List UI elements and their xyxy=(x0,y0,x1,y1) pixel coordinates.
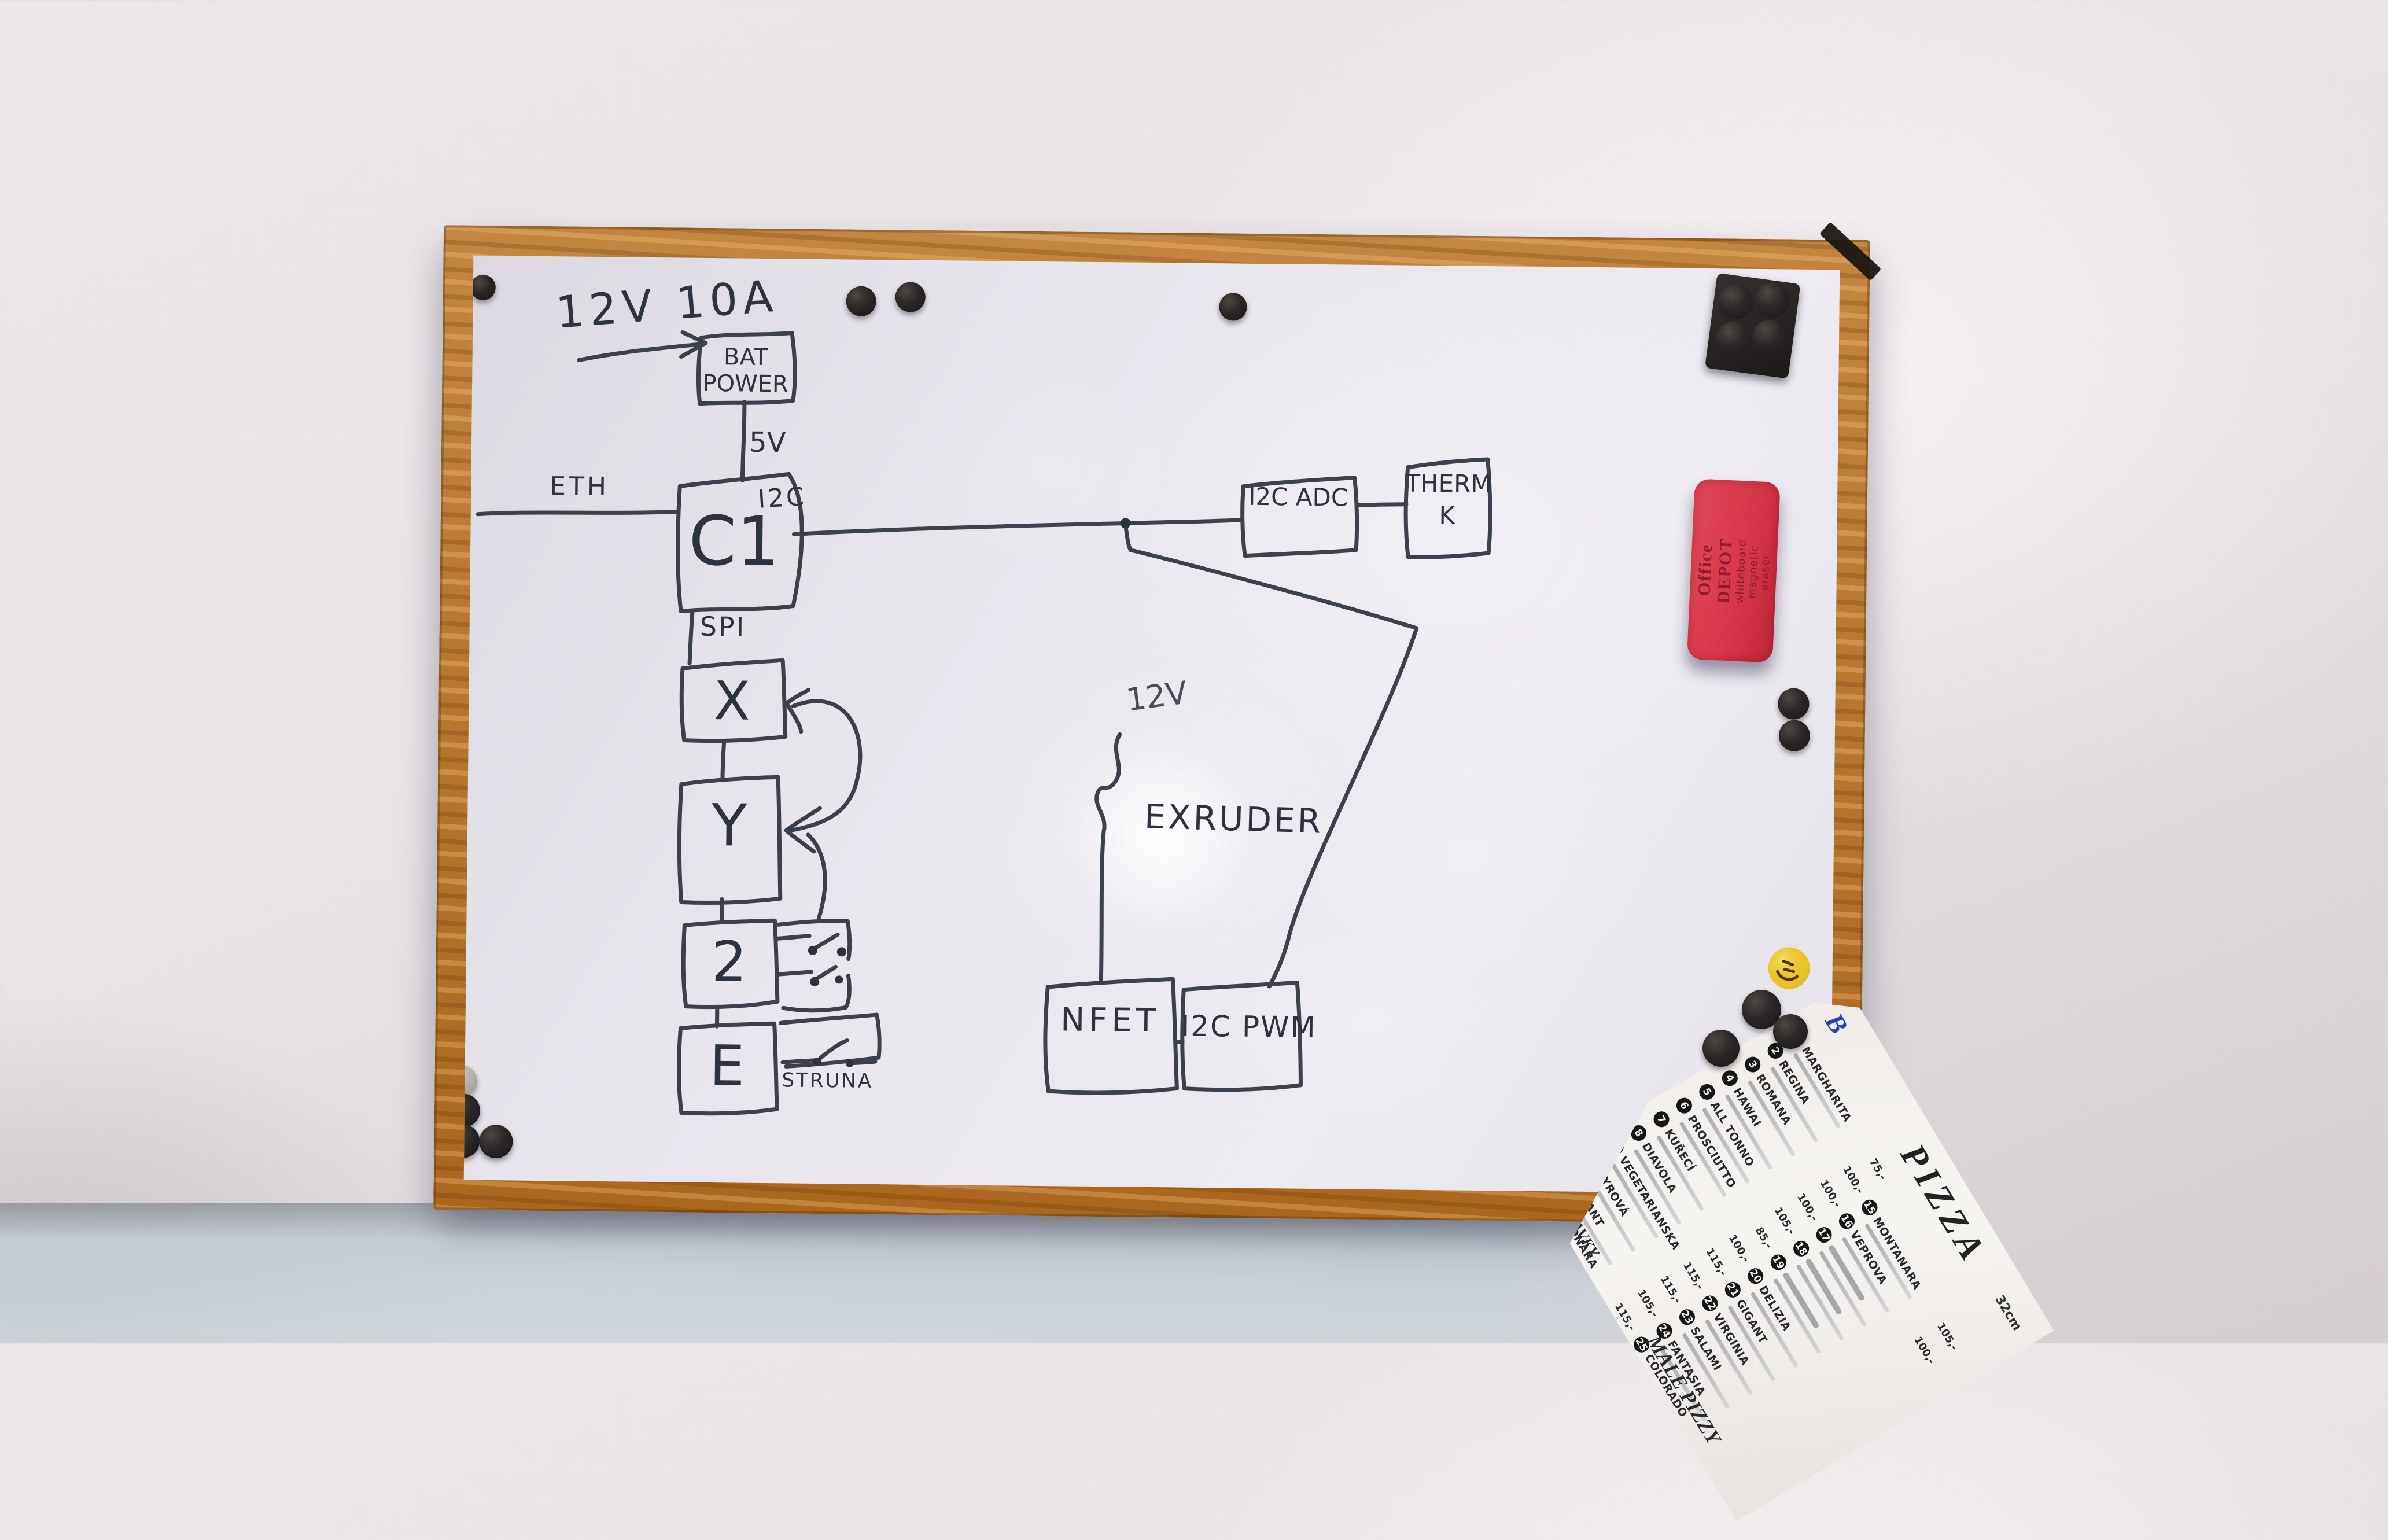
magnet xyxy=(1778,688,1810,720)
menu-size-note: 32cm xyxy=(1992,1293,2024,1333)
whiteboard-eraser: Office DEPOT whiteboard magnetic eraser xyxy=(1687,478,1781,662)
e-axis-box-label: E xyxy=(677,1033,776,1099)
therm-box-label: THERM K xyxy=(1405,468,1490,532)
magnet xyxy=(1219,293,1247,321)
menu-item-number: 18 xyxy=(1790,1238,1812,1259)
menu-item-number: 23 xyxy=(1676,1306,1698,1328)
magnet-pin xyxy=(1702,1030,1740,1067)
x-axis-box-label: X xyxy=(680,669,784,732)
i2c-pwm-box-label: I2C PWM xyxy=(1181,1010,1300,1044)
y-axis-box-label: Y xyxy=(679,791,780,860)
bat-power-box-label: BAT POWER xyxy=(698,344,794,398)
menu-item-number: 7 xyxy=(1650,1108,1672,1130)
magnet-tray xyxy=(1705,273,1801,379)
menu-item-price: 105,- xyxy=(1934,1321,1960,1353)
extruder-label: EXRUDER xyxy=(1144,797,1324,841)
magnet xyxy=(1750,318,1789,356)
5v-label: 5V xyxy=(749,426,786,459)
whiteboard-surface: 12V 10A ETH 5V I2C SPI 12V EXRUDER STRUN… xyxy=(464,256,1840,1195)
menu-item-number: 16 xyxy=(1836,1210,1858,1232)
menu-item-number: 5 xyxy=(1696,1081,1718,1103)
menu-item-number: 4 xyxy=(1719,1067,1741,1089)
menu-item-price: 75,- xyxy=(1867,1156,1889,1182)
menu-title: PIZZA xyxy=(1892,1137,1995,1272)
whiteboard: 12V 10A ETH 5V I2C SPI 12V EXRUDER STRUN… xyxy=(433,225,1870,1225)
menu-item-number: 19 xyxy=(1768,1251,1789,1273)
diagram-strokes xyxy=(464,256,1840,1195)
magnet xyxy=(1713,320,1752,359)
controller-box-label: C1 xyxy=(676,500,793,581)
z-axis-box-label: 2 xyxy=(681,929,777,995)
magnet xyxy=(1779,720,1811,751)
magnet xyxy=(846,286,876,316)
menu-item-number: 17 xyxy=(1814,1224,1835,1246)
magnet xyxy=(470,275,496,300)
whiteboard-photo: { "colors": { "marker": "#2d333f", "wood… xyxy=(0,0,2388,1343)
magnet xyxy=(1753,281,1792,319)
i2c-adc-box-label: I2C ADC xyxy=(1240,482,1357,512)
12v-label: 12V xyxy=(1124,675,1189,719)
eth-label: ETH xyxy=(550,471,609,502)
magnet xyxy=(479,1125,513,1159)
magnet xyxy=(895,282,926,312)
menu-item-number: 3 xyxy=(1742,1054,1763,1075)
menu-item-number: 15 xyxy=(1859,1197,1880,1218)
magnet xyxy=(1716,283,1755,322)
menu-logo: B xyxy=(1819,1008,1854,1039)
smiley-magnet xyxy=(1767,946,1811,990)
menu-item-number: 20 xyxy=(1745,1265,1766,1287)
menu-item-number: 22 xyxy=(1699,1293,1720,1314)
struna-label: STRUNA xyxy=(782,1069,873,1093)
nfet-box-label: NFET xyxy=(1045,1001,1175,1040)
spi-label: SPI xyxy=(699,611,746,643)
menu-item-price: 85,- xyxy=(1753,1225,1775,1251)
menu-item-number: 21 xyxy=(1722,1279,1744,1300)
menu-item-number: 6 xyxy=(1674,1095,1695,1117)
magnet xyxy=(1773,1014,1808,1049)
eraser-brand: Office DEPOT whiteboard magnetic eraser xyxy=(1694,526,1774,616)
